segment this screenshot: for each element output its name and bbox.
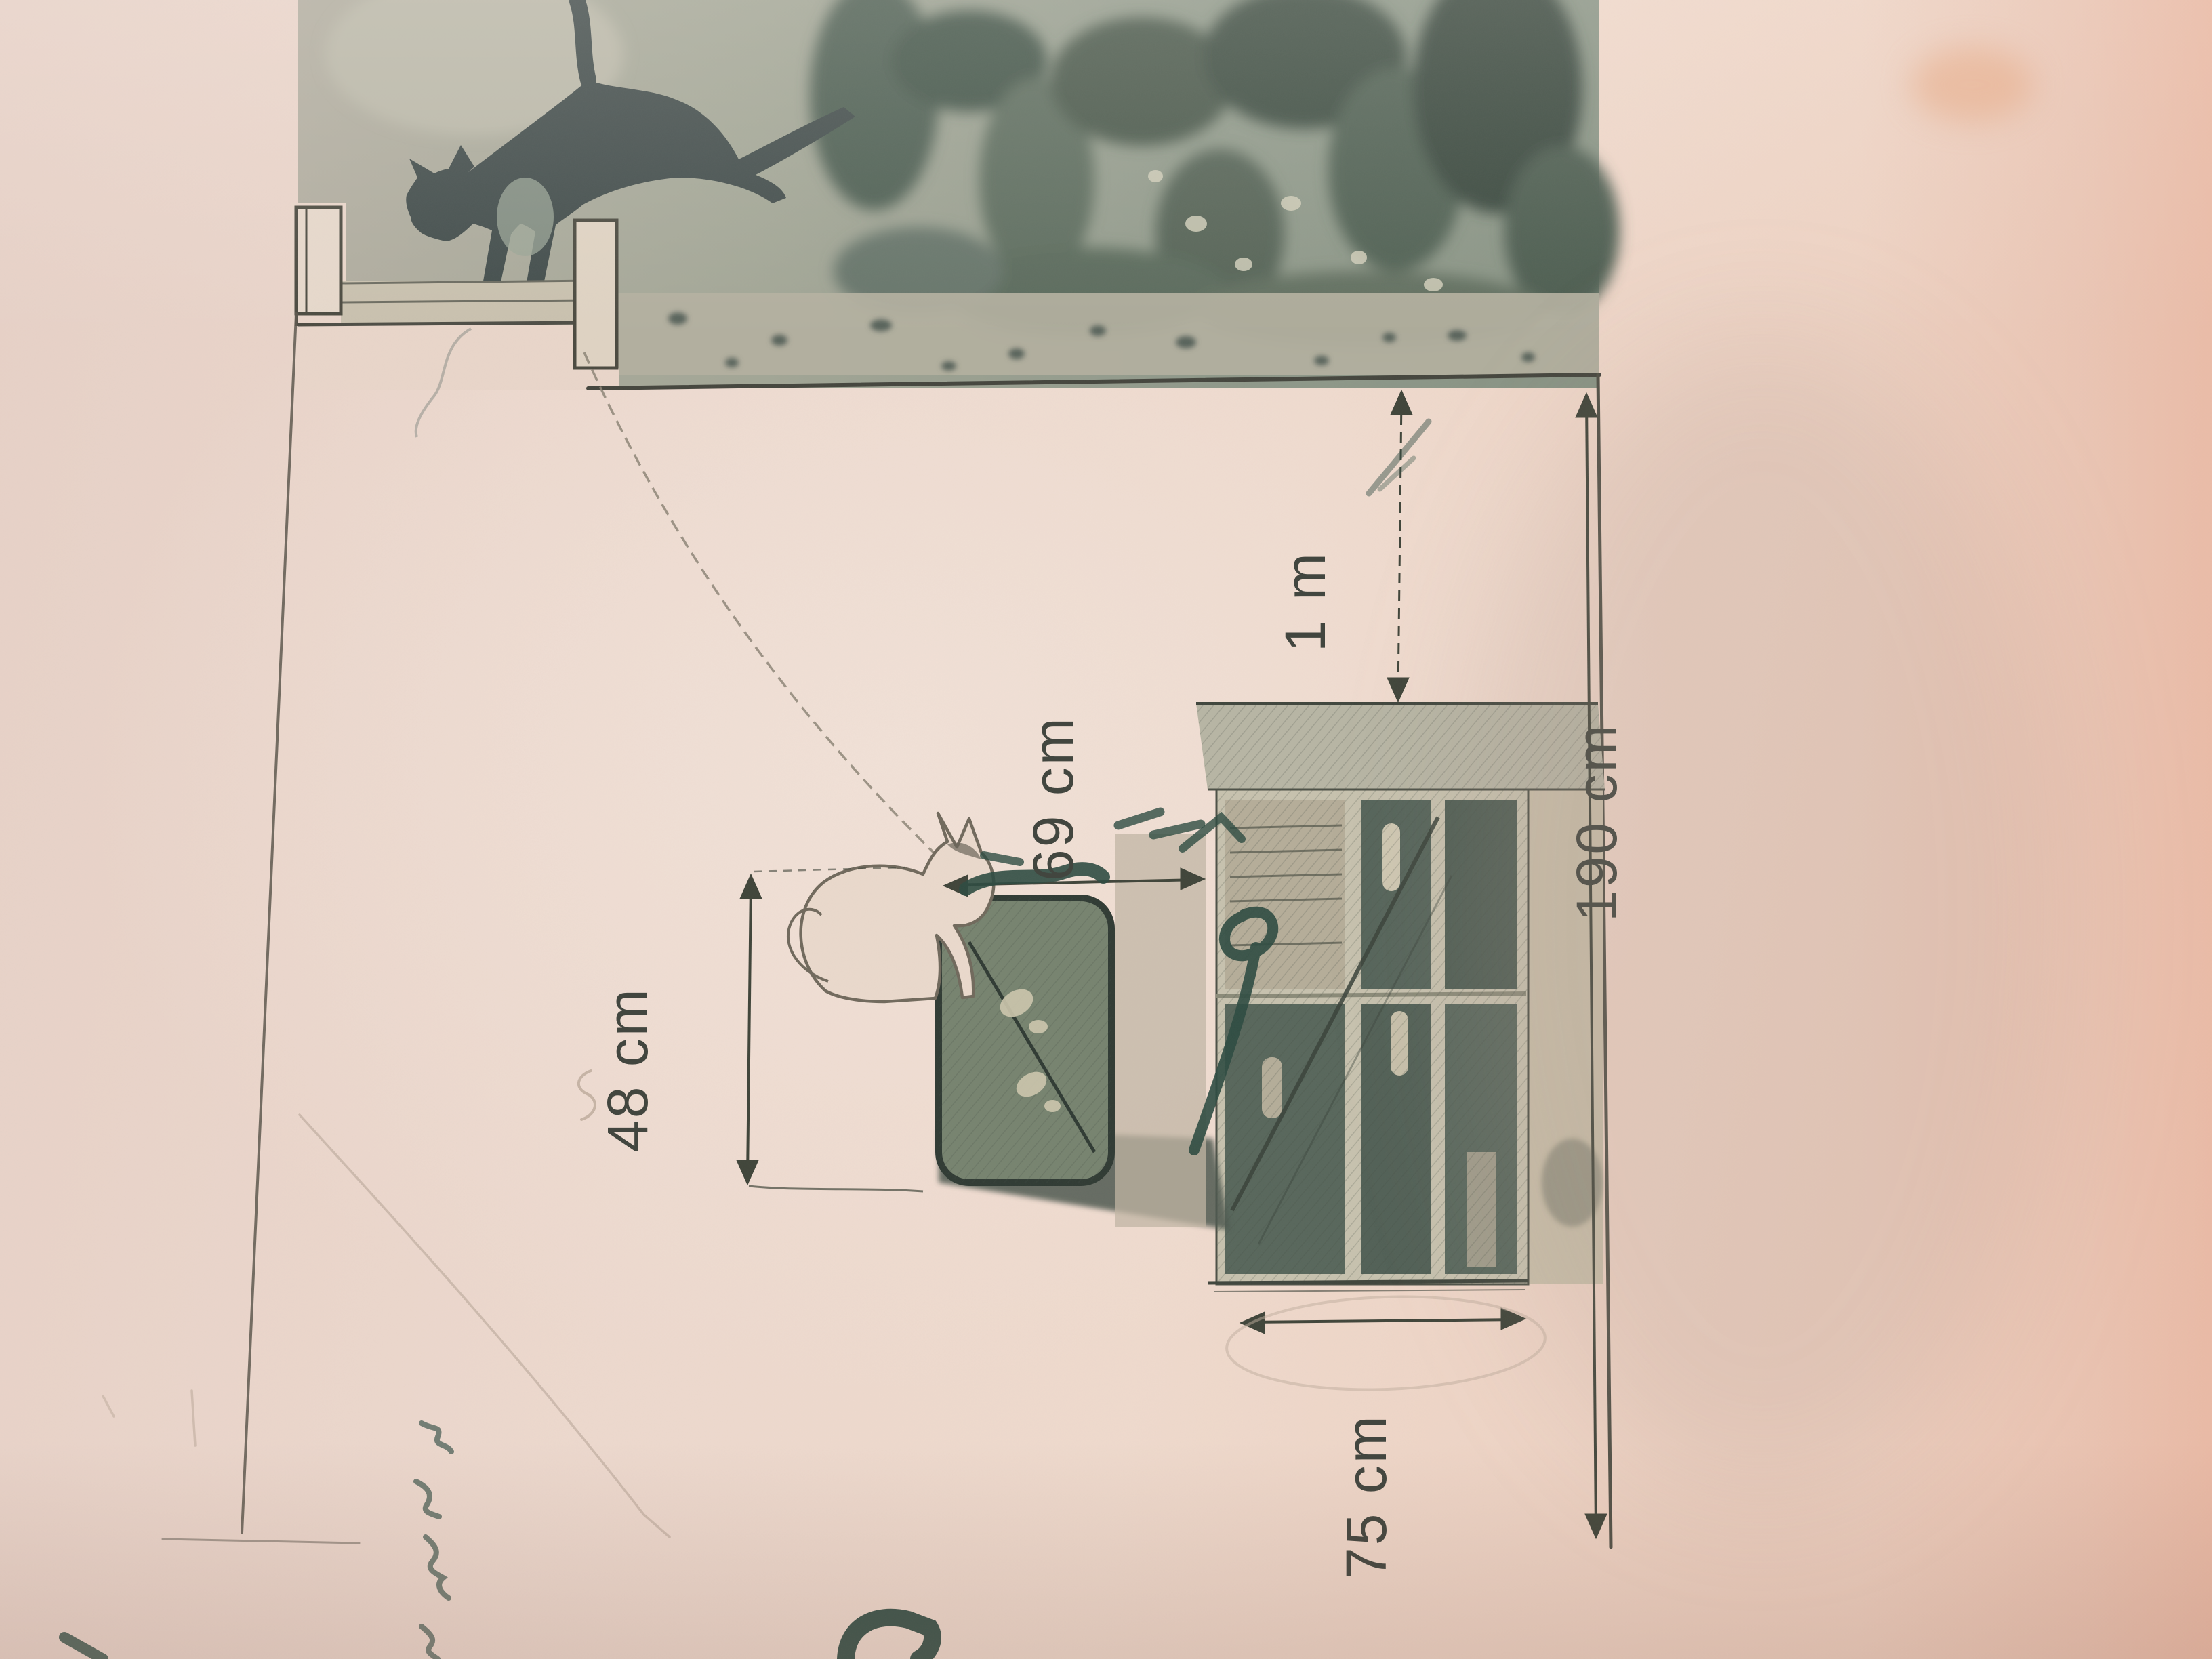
photographed-textbook-page: téléviseur, et qu hauteur se trouve la f… [0,0,2212,1659]
exercise-diagram [0,0,2212,1659]
dimension-label-75cm: 75 cm [1338,1414,1395,1579]
dimension-label-1m: 1 m [1277,551,1334,652]
dimension-label-69cm: 69 cm [1025,716,1082,881]
dimension-label-190cm: 190 cm [1568,723,1625,922]
question-text-fragment-main: hauteur se trouve la fenêtre ? [0,823,7,1659]
dimension-label-48cm: 48 cm [599,987,656,1152]
paper-grain [0,0,2212,1659]
